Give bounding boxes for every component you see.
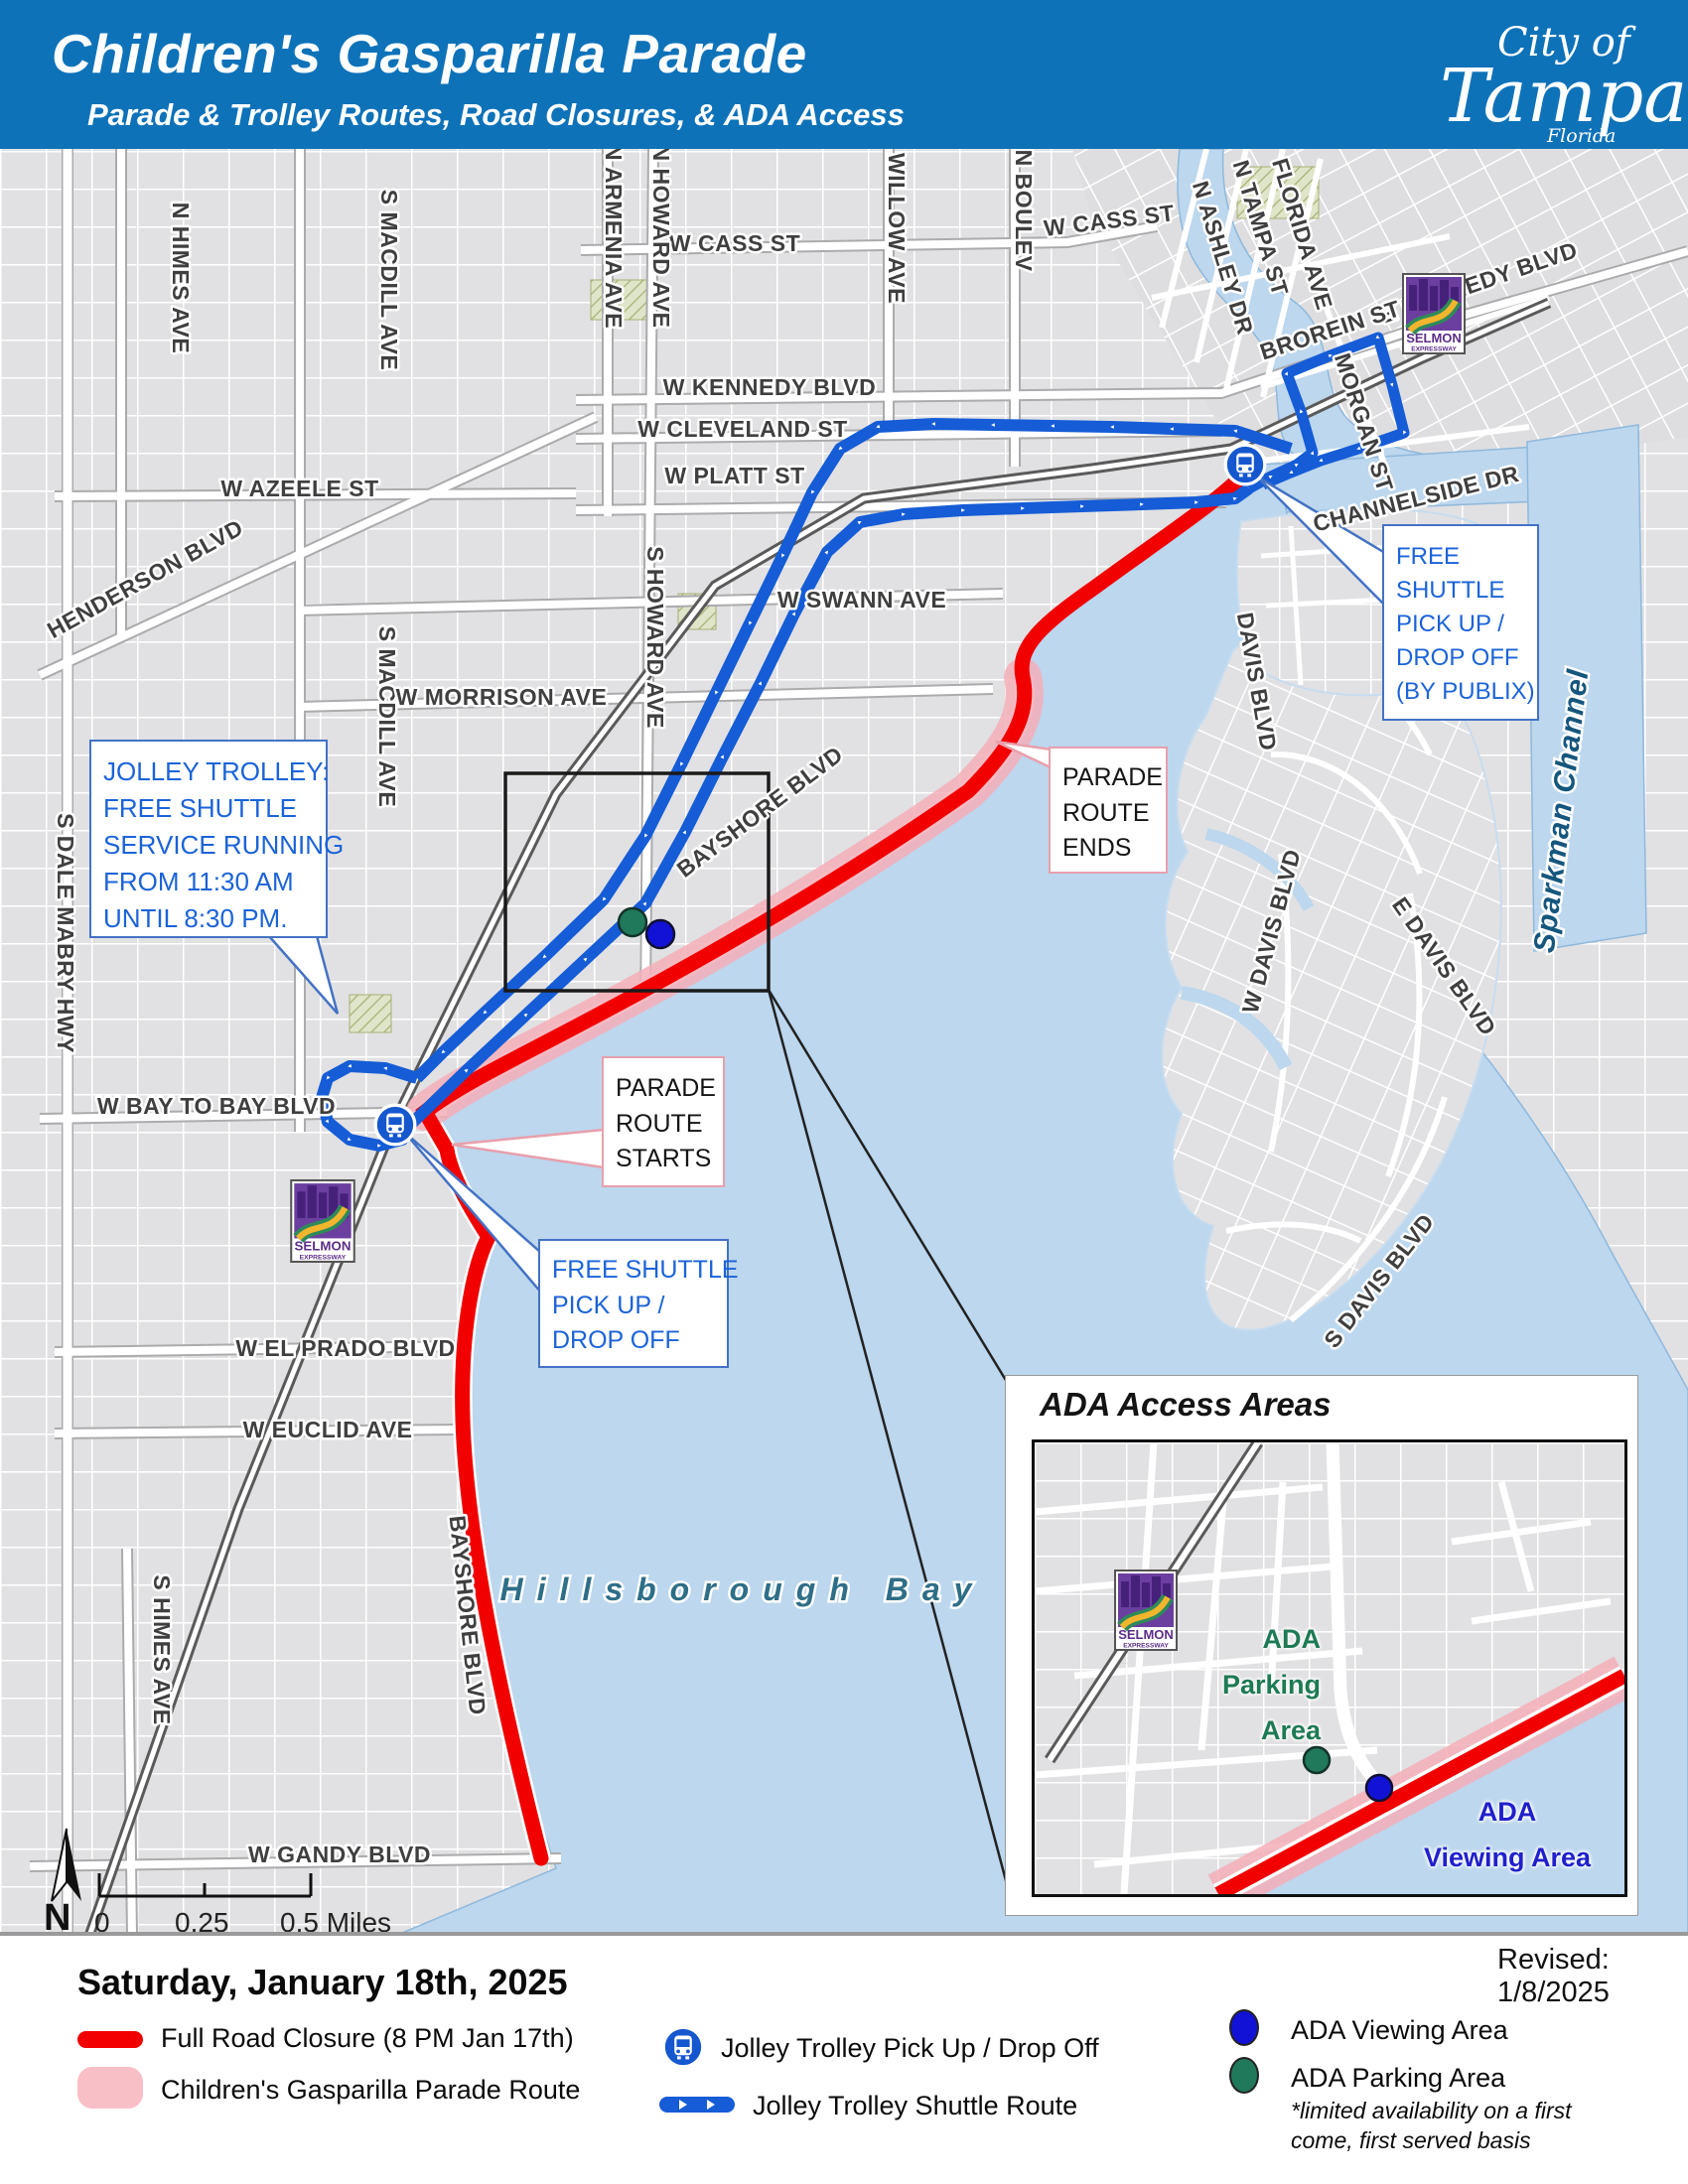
street-label: W SWANN AVE: [777, 587, 946, 613]
callout-line: FREE SHUTTLE: [552, 1253, 715, 1289]
callout-line: PARADE: [1062, 760, 1154, 796]
callout-line: STARTS: [616, 1142, 711, 1177]
selmon-logo-downtown: [1403, 274, 1465, 353]
scale-0: 0: [94, 1907, 110, 1936]
callout-parade-route-ends: PARADE ROUTE ENDS: [1049, 747, 1168, 874]
legend-date: Saturday, January 18th, 2025: [77, 1962, 568, 2003]
street-label: N WILLOW AVE: [884, 149, 910, 304]
scale-half-miles: 0.5 Miles: [280, 1907, 391, 1936]
callout-line: ENDS: [1062, 831, 1154, 867]
legend-trolley-stop-icon: [661, 2025, 705, 2074]
street-label: W EL PRADO BLVD: [235, 1335, 455, 1361]
callout-line: ROUTE: [1062, 796, 1154, 832]
callout-line: FROM 11:30 AM: [103, 864, 314, 900]
legend-full-closure-label: Full Road Closure (8 PM Jan 17th): [161, 2023, 574, 2054]
scale-quarter: 0.25: [175, 1907, 229, 1936]
callout-line: PICK UP /: [1396, 608, 1525, 641]
street-label: W KENNEDY BLVD: [663, 374, 876, 400]
callout-line: FREE SHUTTLE: [103, 790, 314, 827]
selmon-logo-baytobay: [291, 1180, 354, 1262]
ada-parking-line: ADA: [1142, 1616, 1321, 1662]
ada-parking-dot: [619, 908, 646, 936]
legend-swatch-full-closure: [77, 2031, 143, 2048]
city-of-tampa-logo: City of Tampa Florida: [1420, 14, 1648, 143]
ada-viewing-line: Viewing Area: [1388, 1835, 1626, 1880]
page-title: Children's Gasparilla Parade: [52, 22, 807, 85]
header: Children's Gasparilla Parade Parade & Tr…: [0, 0, 1688, 149]
callout-line: PARADE: [616, 1071, 711, 1107]
callout-line: ROUTE: [616, 1107, 711, 1143]
water-label: Hillsborough Bay: [500, 1571, 986, 1607]
callout-line: FREE: [1396, 540, 1525, 574]
street-label: N BOULEV: [1011, 150, 1037, 272]
street-label: S HIMES AVE: [149, 1574, 175, 1724]
callout-line: (BY PUBLIX): [1396, 675, 1525, 709]
ada-parking-line: Area: [1142, 1707, 1321, 1753]
legend-ada-viewing-label: ADA Viewing Area: [1291, 2015, 1508, 2046]
ada-parking-label: ADA Parking Area: [1142, 1616, 1321, 1753]
street-label: W PLATT ST: [664, 463, 804, 488]
street-label: W CASS ST: [669, 230, 800, 256]
street-label: N ARMENIA AVE: [601, 149, 627, 329]
legend-ada-parking-label: ADA Parking Area: [1291, 2063, 1505, 2094]
callout-line: SERVICE RUNNING: [103, 827, 314, 864]
street-label: W EUCLID AVE: [243, 1417, 413, 1442]
revised-date: Revised: 1/8/2025: [1497, 1944, 1688, 2009]
legend-trolley-route-label: Jolley Trolley Shuttle Route: [753, 2091, 1077, 2121]
ada-parking-line: Parking: [1142, 1662, 1321, 1707]
page-subtitle: Parade & Trolley Routes, Road Closures, …: [87, 97, 905, 133]
map-edge: [0, 1932, 1688, 1936]
north-label: N: [44, 1897, 70, 1936]
callout-parade-route-starts: PARADE ROUTE STARTS: [602, 1056, 725, 1187]
legend-ada-parking-dot: [1229, 2057, 1259, 2094]
street-label: W GANDY BLVD: [248, 1842, 431, 1867]
callout-line: SHUTTLE: [1396, 574, 1525, 608]
ada-viewing-line: ADA: [1388, 1789, 1626, 1835]
callout-line: UNTIL 8:30 PM.: [103, 900, 314, 937]
legend-ada-viewing-dot: [1229, 2009, 1259, 2046]
logo-florida: Florida: [1547, 125, 1616, 147]
page: Children's Gasparilla Parade Parade & Tr…: [0, 0, 1688, 2184]
street-label: N HOWARD AVE: [648, 149, 674, 328]
ada-viewing-dot: [646, 920, 674, 948]
street-label: S DALE MABRY HWY: [53, 813, 78, 1053]
street-label: W MORRISON AVE: [396, 684, 608, 710]
street-label: W CLEVELAND ST: [637, 416, 847, 442]
legend-ada-note: *limited availability on a first come, f…: [1291, 2097, 1618, 2156]
ada-viewing-label: ADA Viewing Area: [1388, 1789, 1626, 1880]
street-label: W BAY TO BAY BLVD: [97, 1093, 336, 1119]
street-label: S HOWARD AVE: [642, 546, 668, 729]
street-label: S MACDILL AVE: [374, 626, 400, 807]
callout-line: PICK UP /: [552, 1289, 715, 1324]
legend-parade-route-label: Children's Gasparilla Parade Route: [161, 2075, 580, 2106]
callout-line: DROP OFF: [1396, 641, 1525, 675]
callout-line: JOLLEY TROLLEY:: [103, 753, 314, 790]
street-label: N HIMES AVE: [168, 203, 194, 353]
callout-jolley-trolley: JOLLEY TROLLEY: FREE SHUTTLE SERVICE RUN…: [89, 740, 328, 938]
street-label: W AZEELE ST: [220, 476, 378, 501]
callout-free-shuttle-publix: FREE SHUTTLE PICK UP / DROP OFF (BY PUBL…: [1382, 524, 1539, 721]
callout-line: DROP OFF: [552, 1323, 715, 1359]
callout-free-shuttle-south: FREE SHUTTLE PICK UP / DROP OFF: [538, 1239, 729, 1368]
legend-trolley-stop-label: Jolley Trolley Pick Up / Drop Off: [721, 2033, 1099, 2064]
street-label: S MACDILL AVE: [376, 190, 402, 370]
ada-inset-title: ADA Access Areas: [1040, 1386, 1332, 1424]
trolley-stop-icon-baytobay: [375, 1105, 415, 1145]
legend-swatch-parade-route: [77, 2067, 143, 2109]
trolley-stop-icon-publix: [1225, 445, 1265, 484]
legend-swatch-trolley-route: [659, 2097, 735, 2113]
